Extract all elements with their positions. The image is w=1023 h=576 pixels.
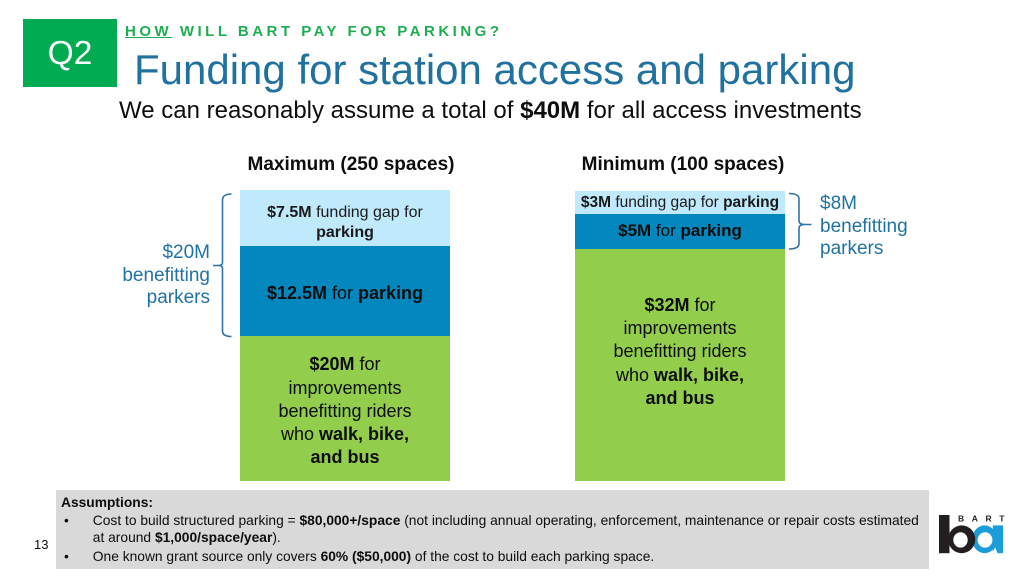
svg-text:BART: BART bbox=[958, 515, 1011, 523]
